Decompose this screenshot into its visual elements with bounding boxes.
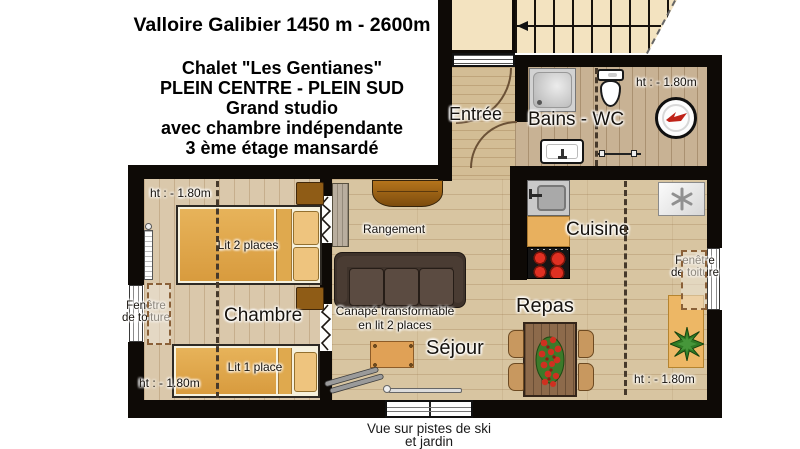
- folding-door-icon: [320, 304, 332, 351]
- wall-bains-bottom: [510, 166, 722, 180]
- wall-bottom-right: [473, 400, 722, 418]
- sofa-label-line1: Canapé transformable: [332, 305, 458, 318]
- closet: [332, 183, 349, 247]
- room-label-rangement: Rangement: [363, 223, 425, 236]
- shower-drain: [537, 100, 542, 105]
- height-limit-dashed-line: [624, 181, 627, 395]
- wall-entree-left: [438, 0, 452, 181]
- wall-top-right: [515, 55, 722, 67]
- height-annotation: ht : - 1.80m: [636, 76, 697, 89]
- ski-pole-icon: [388, 388, 462, 393]
- towel-rail-icon: [597, 148, 641, 160]
- wall-entree-bains: [515, 67, 528, 122]
- subtitle-line: 3 ème étage mansardé: [62, 138, 502, 158]
- staircase-mid-line: [515, 25, 661, 27]
- room-label-repas: Repas: [516, 296, 574, 317]
- room-label-chambre: Chambre: [224, 306, 302, 326]
- south-window: [385, 400, 473, 418]
- dining-chair: [578, 330, 594, 358]
- kitchen-sink: [527, 180, 570, 216]
- wall-left-upper: [128, 165, 144, 285]
- subtitle-line: avec chambre indépendante: [62, 118, 502, 138]
- bed-label-single: Lit 1 place: [205, 361, 305, 374]
- room-label-cuisine: Cuisine: [566, 220, 629, 240]
- kitchen-counter: [527, 216, 570, 247]
- room-label-entree: Entrée: [449, 105, 502, 124]
- wall-kitchen: [510, 180, 527, 280]
- toilet-flush-button: [608, 73, 617, 77]
- wall-bottom-left: [128, 400, 385, 418]
- staircase: [515, 0, 677, 53]
- height-annotation: ht : - 1.80m: [139, 377, 200, 390]
- ski-pole-grip: [383, 385, 391, 393]
- subtitle-line: Chalet "Les Gentianes": [62, 58, 502, 78]
- page-title: Valloire Galibier 1450 m - 2600m: [62, 14, 502, 37]
- stove-icon: [527, 247, 570, 279]
- dining-chair: [508, 330, 524, 358]
- dining-chair: [508, 363, 524, 391]
- page-subtitle: Chalet "Les Gentianes" PLEIN CENTRE - PL…: [62, 58, 502, 158]
- wall-top-main: [128, 165, 452, 179]
- height-limit-dashed-line: [216, 181, 219, 398]
- height-annotation: ht : - 1.80m: [634, 373, 695, 386]
- nightstand: [296, 182, 324, 205]
- skis-icon: [322, 362, 384, 398]
- radiator: [144, 230, 153, 280]
- bed-label-double: Lit 2 places: [198, 239, 298, 252]
- sofa-label-line2: en lit 2 places: [332, 319, 458, 332]
- stair-direction-arrow-icon: [517, 21, 528, 31]
- height-annotation: ht : - 1.80m: [150, 187, 211, 200]
- subtitle-line: PLEIN CENTRE - PLEIN SUD: [62, 78, 502, 98]
- wall-right-upper: [707, 55, 722, 248]
- plant-icon: [670, 327, 704, 361]
- table-flowers-icon: [527, 329, 571, 391]
- sink-faucet-base: [558, 156, 567, 159]
- sofa: [334, 252, 466, 308]
- view-caption-line2: et jardin: [356, 434, 502, 449]
- room-label-bains: Bains - WC: [528, 110, 624, 130]
- wall-right-lower: [707, 310, 722, 402]
- dining-chair: [578, 363, 594, 391]
- roof-window-dashed-outline: [681, 250, 707, 310]
- shower-tray: [529, 68, 576, 112]
- bathroom-sink: [540, 139, 584, 164]
- floor-plan-page: Valloire Galibier 1450 m - 2600m Chalet …: [0, 0, 800, 449]
- room-label-sejour: Séjour: [426, 338, 484, 359]
- radiator-valve: [145, 223, 152, 230]
- subtitle-line: Grand studio: [62, 98, 502, 118]
- washing-machine-icon: [655, 97, 697, 139]
- stair-landing: [441, 0, 515, 53]
- entrance-door: [452, 53, 515, 67]
- storage-cabinet: [372, 180, 443, 207]
- roof-window-dashed-outline: [147, 283, 171, 345]
- fridge-freezer-icon: [658, 182, 705, 216]
